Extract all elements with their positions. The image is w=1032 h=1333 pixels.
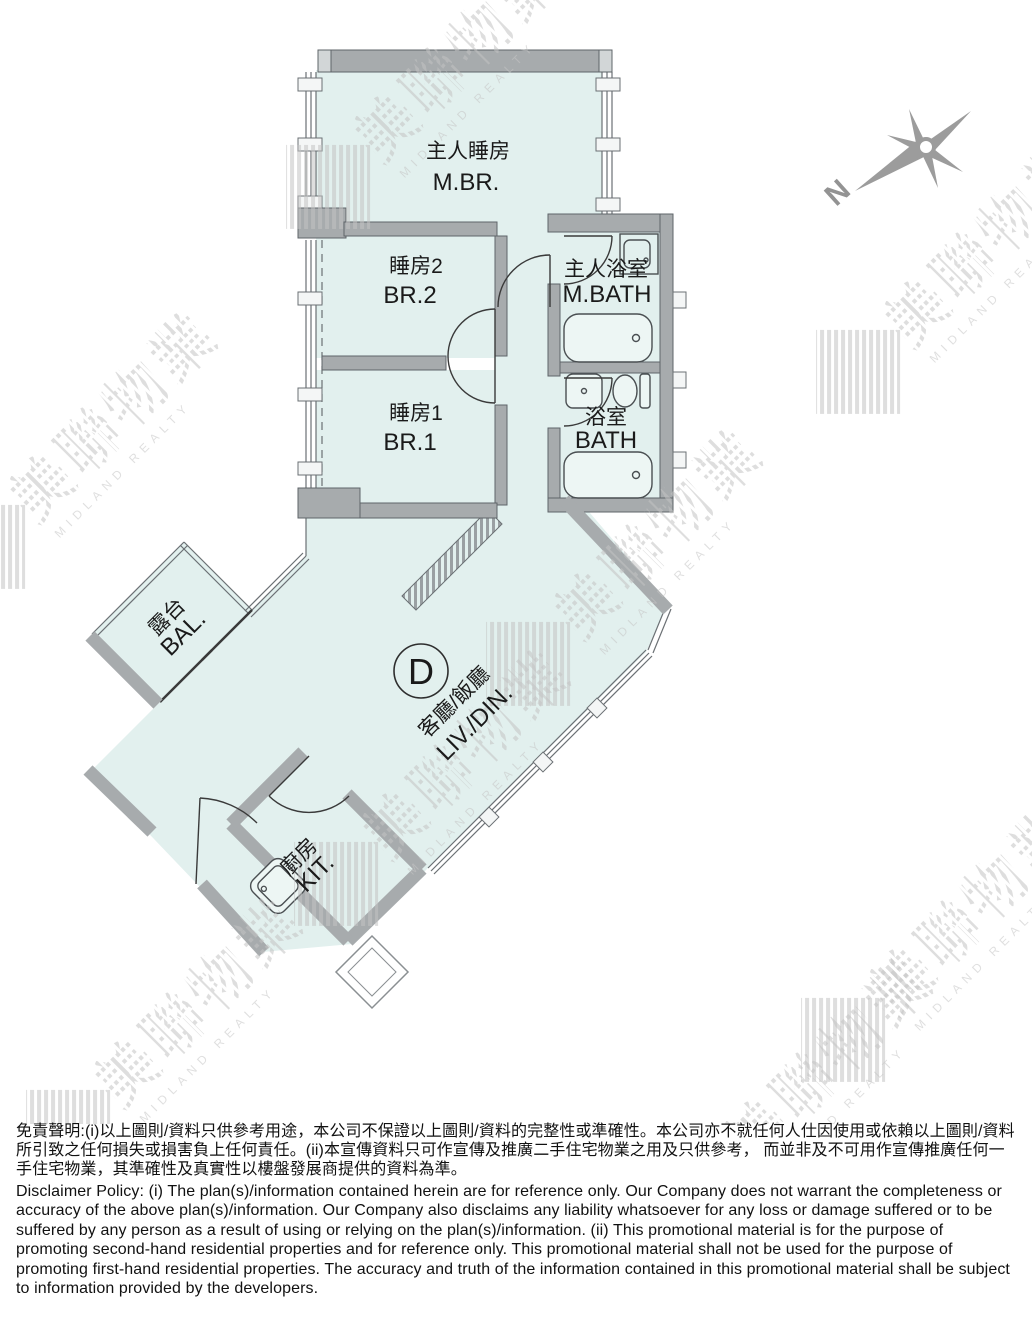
floor-plan-svg: 美聯物業 MIDLAND REALTY xyxy=(0,0,1032,1124)
midland-watermark xyxy=(0,866,334,1124)
north-label: N xyxy=(819,173,857,212)
compass: N xyxy=(819,109,971,212)
label-master-bath-en: M.BATH xyxy=(563,281,652,308)
north-arrow-icon xyxy=(855,109,971,191)
disclaimer-zh: 免責聲明:(i)以上圖則/資料只供參考用途，本公司不保證以上圖則/資料的完整性或… xyxy=(16,1122,1018,1180)
kitchen-platform xyxy=(336,936,408,1008)
unit-label: D xyxy=(408,651,434,692)
label-master-bedroom-zh: 主人睡房 xyxy=(426,140,510,163)
label-bedroom2-en: BR.2 xyxy=(383,282,436,309)
label-bedroom1-zh: 睡房1 xyxy=(389,402,443,425)
disclaimer-en: Disclaimer Policy: (i) The plan(s)/infor… xyxy=(16,1182,1018,1299)
mbath-bathtub xyxy=(564,314,652,362)
bath-bathtub xyxy=(564,452,652,498)
floor-plan-page: 美聯物業 MIDLAND REALTY xyxy=(0,0,1032,1333)
bath-toilet xyxy=(613,375,637,407)
label-bedroom1-en: BR.1 xyxy=(383,429,436,456)
disclaimer: 免責聲明:(i)以上圖則/資料只供參考用途，本公司不保證以上圖則/資料的完整性或… xyxy=(16,1122,1018,1301)
label-master-bedroom-en: M.BR. xyxy=(433,169,500,196)
label-bedroom2-zh: 睡房2 xyxy=(389,255,443,278)
label-master-bath-zh: 主人浴室 xyxy=(564,258,648,281)
label-bath-zh: 浴室 xyxy=(585,406,627,429)
label-bath-en: BATH xyxy=(575,427,637,454)
bath-sink xyxy=(566,374,602,408)
